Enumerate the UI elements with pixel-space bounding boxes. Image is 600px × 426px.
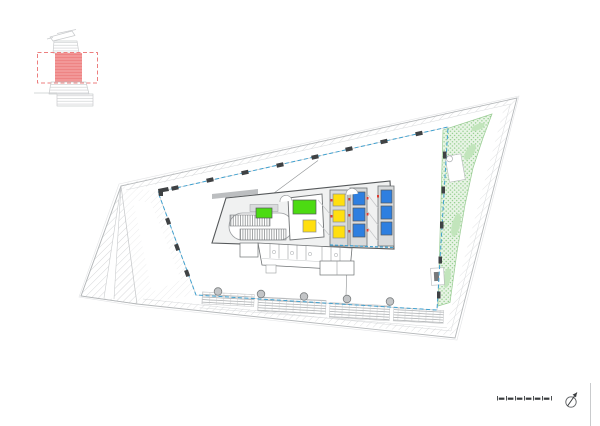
yellow-room xyxy=(303,220,316,232)
lift-cell-blue-5 xyxy=(381,206,392,219)
key-plan-highlight-floor-lines xyxy=(55,53,82,82)
green-room-small xyxy=(256,208,272,218)
lift-cell-yellow-3 xyxy=(333,226,345,238)
washroom-protrusion xyxy=(266,265,276,273)
lift-cell-blue-6 xyxy=(381,222,392,235)
scale-bar xyxy=(497,396,552,401)
stair-run-2 xyxy=(240,229,286,240)
washroom-side-room xyxy=(240,243,258,257)
key-plan-crown xyxy=(47,30,76,42)
lift-cell-yellow-2 xyxy=(333,210,345,222)
lift-cell-yellow-1 xyxy=(333,194,345,206)
north-arrow-icon xyxy=(566,393,577,408)
floor-plan-drawing xyxy=(0,0,600,426)
key-plan-lower-stack xyxy=(34,82,93,106)
lift-cell-blue-3 xyxy=(353,224,365,237)
lift-cell-blue-4 xyxy=(381,190,392,203)
lift-cell-blue-2 xyxy=(353,208,365,221)
drawing-sheet xyxy=(0,0,600,426)
green-room-large xyxy=(293,200,316,214)
key-plan xyxy=(34,30,98,107)
terrace-lower-notch xyxy=(431,268,445,286)
key-plan-upper-stack xyxy=(53,41,79,53)
